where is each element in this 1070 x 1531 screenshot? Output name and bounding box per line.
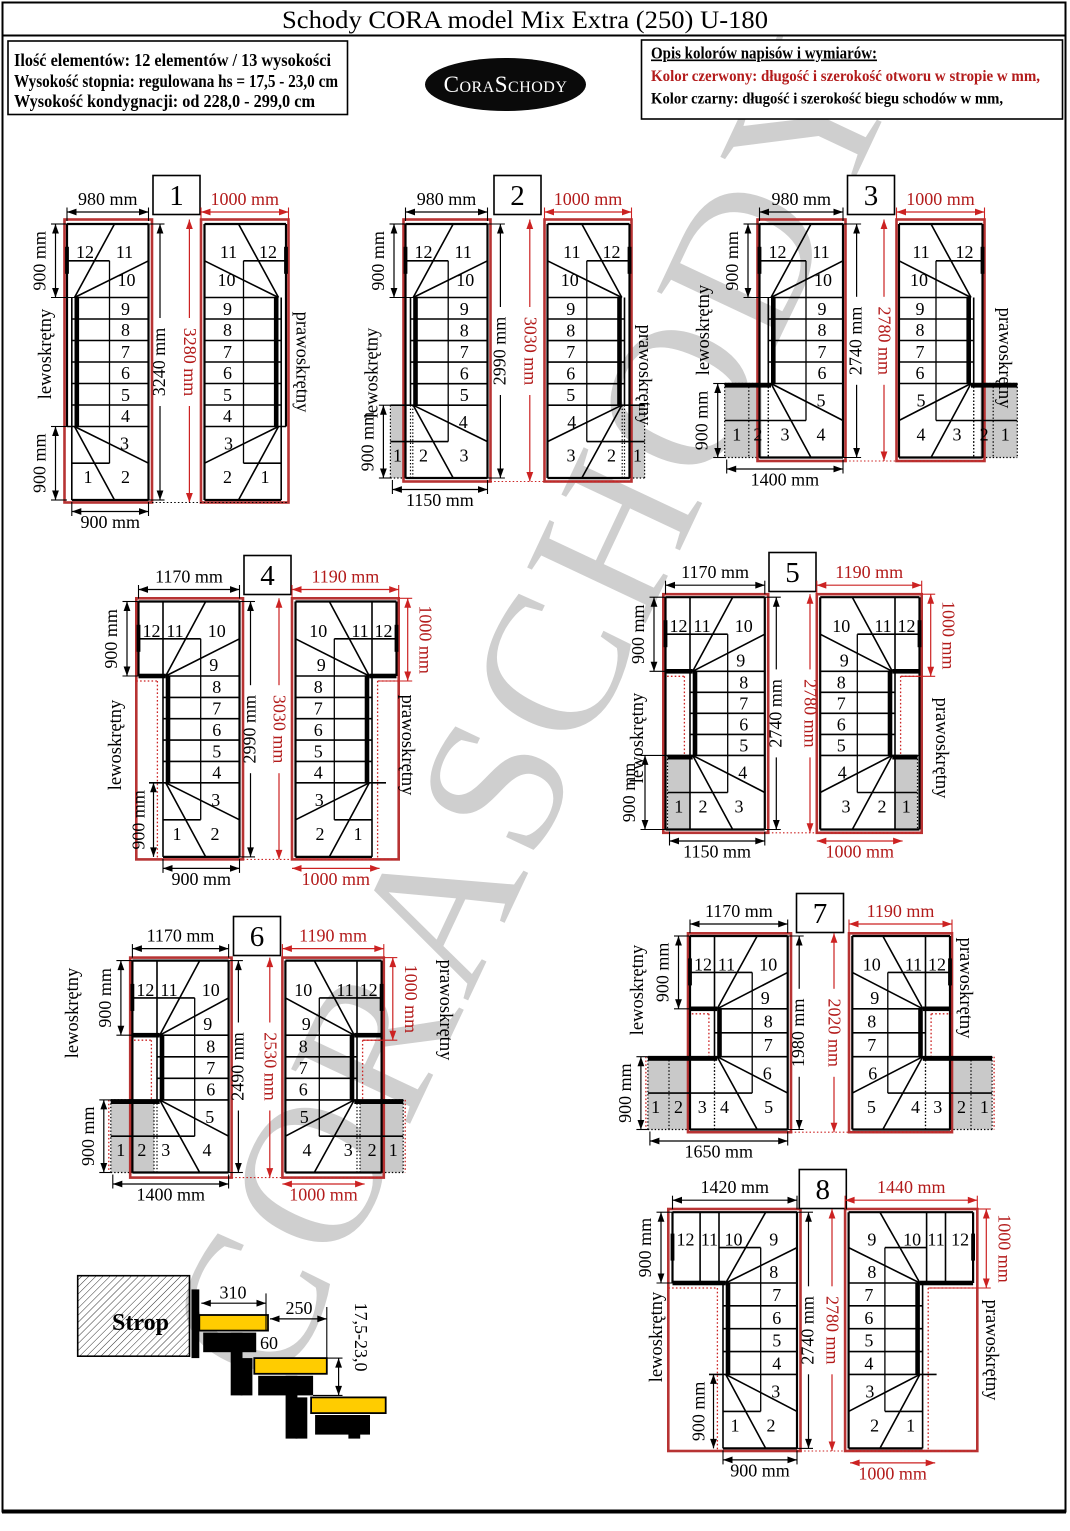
svg-text:3: 3 [865, 1381, 874, 1401]
svg-text:1650 mm: 1650 mm [685, 1142, 754, 1162]
svg-text:3030 mm: 3030 mm [270, 695, 290, 764]
svg-text:900 mm: 900 mm [722, 231, 742, 291]
svg-text:10: 10 [118, 270, 136, 290]
svg-text:6: 6 [837, 714, 846, 734]
svg-text:2530 mm: 2530 mm [260, 1032, 280, 1101]
svg-text:6: 6 [223, 363, 232, 383]
svg-text:4: 4 [459, 412, 468, 432]
svg-text:Kolor czarny: długość i szero: Kolor czarny: długość i szerokość biegu … [651, 91, 1003, 108]
svg-text:3: 3 [933, 1097, 942, 1117]
svg-text:5: 5 [205, 1107, 214, 1127]
svg-text:1420 mm: 1420 mm [701, 1177, 770, 1197]
svg-text:5: 5 [817, 391, 826, 411]
svg-text:11: 11 [160, 980, 177, 1000]
svg-text:10: 10 [814, 270, 832, 290]
svg-text:2: 2 [368, 1140, 377, 1160]
svg-text:1150 mm: 1150 mm [406, 490, 474, 510]
svg-text:11: 11 [905, 954, 922, 974]
svg-text:6: 6 [566, 363, 575, 383]
svg-text:9: 9 [121, 299, 130, 319]
svg-text:prawoskrętny: prawoskrętny [981, 1300, 1001, 1401]
svg-text:5: 5 [300, 1107, 309, 1127]
svg-text:10: 10 [735, 616, 753, 636]
svg-text:11: 11 [701, 1230, 718, 1250]
svg-text:3: 3 [211, 790, 220, 810]
svg-text:17,5-23,0: 17,5-23,0 [351, 1303, 371, 1372]
svg-text:12: 12 [136, 980, 154, 1000]
svg-text:4: 4 [303, 1140, 312, 1160]
svg-text:10: 10 [863, 954, 881, 974]
svg-text:3: 3 [735, 797, 744, 817]
svg-text:7: 7 [460, 342, 469, 362]
svg-text:9: 9 [317, 655, 326, 675]
svg-text:3: 3 [344, 1140, 353, 1160]
svg-text:lewoskrętny: lewoskrętny [363, 327, 383, 418]
svg-text:1: 1 [633, 446, 642, 466]
svg-text:4: 4 [121, 406, 130, 426]
svg-text:6: 6 [212, 720, 221, 740]
svg-text:2740 mm: 2740 mm [846, 307, 866, 376]
svg-text:11: 11 [912, 242, 929, 262]
svg-text:11: 11 [874, 616, 891, 636]
svg-text:3280 mm: 3280 mm [180, 328, 200, 397]
svg-text:7: 7 [121, 342, 130, 362]
svg-text:prawoskrętny: prawoskrętny [292, 312, 312, 413]
svg-text:8: 8 [566, 320, 575, 340]
svg-text:2: 2 [870, 1415, 879, 1435]
svg-text:10: 10 [561, 270, 579, 290]
svg-text:1: 1 [169, 180, 184, 212]
svg-text:900 mm: 900 mm [689, 1382, 709, 1442]
svg-text:6: 6 [818, 363, 827, 383]
svg-text:6: 6 [739, 714, 748, 734]
svg-text:8: 8 [223, 320, 232, 340]
svg-text:4: 4 [567, 412, 576, 432]
svg-text:900 mm: 900 mm [80, 512, 140, 532]
svg-text:Wysokość stopnia: regulowana: Wysokość stopnia: regulowana hs = 17,5 -… [14, 71, 338, 91]
svg-text:1: 1 [902, 797, 911, 817]
svg-text:1: 1 [1001, 425, 1010, 445]
svg-text:8: 8 [121, 320, 130, 340]
svg-text:3: 3 [161, 1140, 170, 1160]
svg-text:11: 11 [455, 242, 472, 262]
svg-text:1: 1 [732, 425, 741, 445]
svg-text:11: 11 [220, 242, 237, 262]
svg-text:prawoskrętny: prawoskrętny [435, 960, 455, 1061]
svg-text:4: 4 [314, 763, 323, 783]
svg-text:60: 60 [260, 1333, 278, 1353]
svg-text:900 mm: 900 mm [368, 231, 388, 291]
svg-text:7: 7 [299, 1058, 308, 1078]
svg-text:2: 2 [211, 824, 220, 844]
svg-text:12: 12 [360, 980, 378, 1000]
svg-text:900 mm: 900 mm [101, 609, 121, 669]
svg-text:1190 mm: 1190 mm [311, 567, 379, 587]
svg-text:9: 9 [916, 299, 925, 319]
svg-text:5: 5 [460, 385, 469, 405]
svg-text:3: 3 [864, 180, 879, 212]
svg-text:2: 2 [957, 1097, 966, 1117]
svg-text:1000 mm: 1000 mm [939, 601, 959, 670]
svg-text:4: 4 [911, 1097, 920, 1117]
svg-text:lewoskrętny: lewoskrętny [694, 284, 714, 375]
svg-text:3: 3 [771, 1381, 780, 1401]
svg-text:12: 12 [677, 1230, 695, 1250]
svg-text:1400 mm: 1400 mm [751, 470, 820, 490]
svg-text:900 mm: 900 mm [30, 231, 50, 291]
svg-text:1000 mm: 1000 mm [211, 189, 280, 209]
svg-text:6: 6 [864, 1308, 873, 1328]
svg-text:7: 7 [223, 342, 232, 362]
svg-text:9: 9 [736, 650, 745, 670]
svg-text:1: 1 [173, 824, 182, 844]
svg-text:lewoskrętny: lewoskrętny [106, 699, 126, 790]
svg-text:4: 4 [720, 1097, 729, 1117]
svg-text:4: 4 [772, 1354, 781, 1374]
svg-text:12: 12 [375, 621, 393, 641]
svg-text:10: 10 [309, 621, 327, 641]
svg-text:7: 7 [916, 342, 925, 362]
svg-text:1000 mm: 1000 mm [554, 189, 623, 209]
svg-text:1: 1 [674, 797, 683, 817]
svg-text:11: 11 [927, 1230, 944, 1250]
svg-text:2: 2 [878, 797, 887, 817]
svg-text:5: 5 [764, 1097, 773, 1117]
svg-text:1000 mm: 1000 mm [906, 189, 975, 209]
svg-text:900 mm: 900 mm [692, 391, 712, 451]
svg-text:2: 2 [767, 1415, 776, 1435]
svg-text:12: 12 [951, 1230, 969, 1250]
svg-text:3030 mm: 3030 mm [520, 317, 540, 386]
svg-text:8: 8 [818, 320, 827, 340]
svg-text:250: 250 [286, 1298, 313, 1318]
svg-text:9: 9 [769, 1230, 778, 1250]
svg-text:900 mm: 900 mm [653, 943, 673, 1003]
svg-text:6: 6 [460, 363, 469, 383]
svg-text:1170 mm: 1170 mm [155, 567, 223, 587]
svg-text:900 mm: 900 mm [171, 869, 231, 889]
svg-text:1: 1 [261, 467, 270, 487]
svg-text:6: 6 [121, 363, 130, 383]
svg-text:6: 6 [206, 1080, 215, 1100]
svg-text:8: 8 [867, 1011, 876, 1031]
svg-text:980 mm: 980 mm [417, 189, 477, 209]
svg-text:2490 mm: 2490 mm [227, 1032, 247, 1101]
svg-text:9: 9 [818, 299, 827, 319]
svg-text:7: 7 [212, 699, 221, 719]
svg-text:3: 3 [953, 425, 962, 445]
svg-text:980 mm: 980 mm [771, 189, 831, 209]
svg-text:7: 7 [314, 699, 323, 719]
svg-text:900 mm: 900 mm [357, 412, 377, 472]
svg-text:6: 6 [763, 1064, 772, 1084]
svg-text:1000 mm: 1000 mm [289, 1185, 358, 1205]
svg-text:8: 8 [314, 677, 323, 697]
svg-text:11: 11 [351, 621, 368, 641]
svg-text:900 mm: 900 mm [129, 790, 149, 850]
svg-text:3: 3 [842, 797, 851, 817]
svg-text:900 mm: 900 mm [635, 1218, 655, 1278]
svg-text:8: 8 [769, 1262, 778, 1282]
svg-text:1: 1 [354, 824, 363, 844]
svg-text:10: 10 [832, 616, 850, 636]
svg-text:12: 12 [769, 242, 787, 262]
svg-text:7: 7 [867, 1035, 876, 1055]
svg-text:8: 8 [867, 1262, 876, 1282]
svg-text:6: 6 [772, 1308, 781, 1328]
svg-text:7: 7 [206, 1058, 215, 1078]
svg-text:9: 9 [302, 1014, 311, 1034]
svg-text:3: 3 [567, 446, 576, 466]
svg-text:1150 mm: 1150 mm [683, 842, 751, 862]
svg-text:10: 10 [202, 980, 220, 1000]
svg-text:5: 5 [867, 1097, 876, 1117]
svg-text:8: 8 [212, 677, 221, 697]
svg-text:7: 7 [864, 1285, 873, 1305]
svg-text:2020 mm: 2020 mm [825, 999, 845, 1068]
svg-text:5: 5 [785, 557, 800, 589]
svg-text:6: 6 [250, 921, 265, 953]
svg-text:11: 11 [718, 954, 735, 974]
svg-text:1000 mm: 1000 mm [994, 1214, 1014, 1283]
svg-text:10: 10 [208, 621, 226, 641]
svg-text:prawoskrętny: prawoskrętny [397, 695, 417, 796]
svg-text:8: 8 [739, 672, 748, 692]
svg-text:6: 6 [299, 1080, 308, 1100]
svg-text:12: 12 [694, 954, 712, 974]
svg-text:6: 6 [916, 363, 925, 383]
svg-text:2740 mm: 2740 mm [765, 679, 785, 748]
svg-text:4: 4 [864, 1354, 873, 1374]
svg-text:7: 7 [818, 342, 827, 362]
svg-text:7: 7 [837, 693, 846, 713]
svg-text:2: 2 [223, 467, 232, 487]
svg-text:3: 3 [781, 425, 790, 445]
svg-text:prawoskrętny: prawoskrętny [634, 325, 654, 426]
svg-text:4: 4 [260, 560, 275, 592]
svg-text:900 mm: 900 mm [78, 1106, 98, 1166]
svg-text:10: 10 [759, 954, 777, 974]
svg-text:1000 mm: 1000 mm [401, 965, 421, 1034]
svg-text:2: 2 [980, 425, 989, 445]
svg-text:5: 5 [917, 391, 926, 411]
svg-text:12: 12 [259, 242, 277, 262]
svg-text:900 mm: 900 mm [615, 1063, 635, 1123]
svg-text:3: 3 [698, 1097, 707, 1117]
svg-text:1190 mm: 1190 mm [835, 562, 903, 582]
svg-text:900 mm: 900 mm [95, 968, 115, 1028]
svg-text:1: 1 [980, 1097, 989, 1117]
svg-text:3: 3 [460, 446, 469, 466]
svg-text:1190 mm: 1190 mm [867, 901, 935, 921]
svg-text:2: 2 [699, 797, 708, 817]
svg-text:12: 12 [603, 242, 621, 262]
svg-text:1170 mm: 1170 mm [147, 926, 215, 946]
svg-text:8: 8 [916, 320, 925, 340]
svg-text:5: 5 [864, 1331, 873, 1351]
svg-text:1170 mm: 1170 mm [681, 562, 749, 582]
svg-text:12: 12 [670, 616, 688, 636]
svg-text:1: 1 [731, 1415, 740, 1435]
svg-text:900 mm: 900 mm [628, 604, 648, 664]
svg-text:12: 12 [76, 242, 94, 262]
svg-text:10: 10 [294, 980, 312, 1000]
svg-text:5: 5 [566, 385, 575, 405]
svg-text:Ilość elementów: 12 elementów: Ilość elementów: 12 elementów / 13 wysok… [14, 50, 331, 70]
svg-text:1: 1 [393, 446, 402, 466]
svg-text:1: 1 [389, 1140, 398, 1160]
svg-text:900 mm: 900 mm [730, 1460, 790, 1480]
svg-text:lewoskrętny: lewoskrętny [647, 1291, 667, 1382]
svg-text:310: 310 [220, 1283, 247, 1303]
svg-text:12: 12 [956, 242, 974, 262]
svg-text:lewoskrętny: lewoskrętny [628, 692, 648, 783]
svg-text:2780 mm: 2780 mm [823, 1296, 843, 1365]
svg-text:5: 5 [837, 735, 846, 755]
svg-text:7: 7 [739, 693, 748, 713]
svg-text:2990 mm: 2990 mm [489, 317, 509, 386]
svg-text:12: 12 [898, 616, 916, 636]
svg-text:7: 7 [813, 898, 828, 930]
svg-text:1: 1 [116, 1140, 125, 1160]
svg-text:12: 12 [143, 621, 161, 641]
svg-text:1000 mm: 1000 mm [858, 1463, 927, 1483]
svg-text:prawoskrętny: prawoskrętny [931, 698, 951, 799]
svg-text:4: 4 [223, 406, 232, 426]
svg-text:1400 mm: 1400 mm [136, 1185, 205, 1205]
svg-text:11: 11 [116, 242, 133, 262]
svg-text:5: 5 [223, 385, 232, 405]
svg-text:3: 3 [224, 434, 233, 454]
svg-text:12: 12 [415, 242, 433, 262]
svg-text:4: 4 [738, 762, 747, 782]
svg-text:10: 10 [218, 270, 236, 290]
svg-text:11: 11 [812, 242, 829, 262]
svg-text:Kolor czerwony: długość i sze: Kolor czerwony: długość i szerokość otwo… [651, 68, 1040, 85]
svg-text:10: 10 [910, 270, 928, 290]
svg-text:lewoskrętny: lewoskrętny [63, 967, 83, 1058]
svg-text:9: 9 [867, 1230, 876, 1250]
svg-text:1190 mm: 1190 mm [299, 926, 367, 946]
svg-text:4: 4 [838, 762, 847, 782]
svg-text:4: 4 [212, 763, 221, 783]
svg-text:1000 mm: 1000 mm [825, 842, 894, 862]
svg-text:10: 10 [903, 1230, 921, 1250]
svg-text:8: 8 [764, 1011, 773, 1031]
svg-text:11: 11 [563, 242, 580, 262]
svg-text:1: 1 [651, 1097, 660, 1117]
svg-text:2: 2 [121, 467, 130, 487]
svg-text:11: 11 [336, 980, 353, 1000]
svg-text:9: 9 [203, 1014, 212, 1034]
svg-text:9: 9 [840, 650, 849, 670]
svg-text:4: 4 [817, 425, 826, 445]
svg-text:11: 11 [166, 621, 183, 641]
svg-text:5: 5 [772, 1331, 781, 1351]
svg-text:lewoskrętny: lewoskrętny [628, 944, 648, 1035]
svg-text:5: 5 [212, 741, 221, 761]
svg-text:6: 6 [868, 1064, 877, 1084]
svg-text:9: 9 [223, 299, 232, 319]
svg-text:7: 7 [566, 342, 575, 362]
svg-text:5: 5 [739, 735, 748, 755]
svg-text:8: 8 [816, 1174, 831, 1206]
svg-text:8: 8 [299, 1037, 308, 1057]
svg-text:3: 3 [315, 790, 324, 810]
svg-text:9: 9 [209, 655, 218, 675]
svg-text:lewoskrętny: lewoskrętny [36, 308, 56, 399]
svg-text:7: 7 [764, 1035, 773, 1055]
svg-text:2780 mm: 2780 mm [801, 679, 821, 748]
svg-text:3: 3 [120, 434, 129, 454]
svg-text:Strop: Strop [112, 1310, 169, 1336]
svg-text:8: 8 [837, 672, 846, 692]
svg-text:2: 2 [137, 1140, 146, 1160]
svg-text:1000 mm: 1000 mm [302, 869, 371, 889]
svg-text:4: 4 [203, 1140, 212, 1160]
svg-text:prawoskrętny: prawoskrętny [955, 938, 975, 1039]
svg-text:8: 8 [206, 1037, 215, 1057]
svg-text:2: 2 [510, 180, 525, 212]
svg-text:10: 10 [456, 270, 474, 290]
svg-text:Wysokość kondygnacji: od 228,0: Wysokość kondygnacji: od 228,0 - 299,0 c… [14, 91, 315, 111]
svg-text:2: 2 [316, 824, 325, 844]
svg-text:12: 12 [928, 954, 946, 974]
svg-text:2780 mm: 2780 mm [875, 307, 895, 376]
svg-text:2740 mm: 2740 mm [798, 1296, 818, 1365]
svg-text:prawoskrętny: prawoskrętny [994, 308, 1014, 409]
svg-text:8: 8 [460, 320, 469, 340]
svg-text:1440 mm: 1440 mm [877, 1177, 946, 1197]
svg-text:6: 6 [314, 720, 323, 740]
svg-text:5: 5 [314, 741, 323, 761]
svg-text:9: 9 [566, 299, 575, 319]
svg-text:980 mm: 980 mm [78, 189, 138, 209]
svg-text:2990 mm: 2990 mm [240, 695, 260, 764]
svg-text:1980 mm: 1980 mm [788, 999, 808, 1068]
svg-text:7: 7 [772, 1285, 781, 1305]
svg-text:2: 2 [419, 446, 428, 466]
svg-text:9: 9 [460, 299, 469, 319]
svg-text:2: 2 [674, 1097, 683, 1117]
svg-text:3240 mm: 3240 mm [149, 328, 169, 397]
svg-text:1000 mm: 1000 mm [416, 605, 436, 674]
svg-text:Opis kolorów napisów i wymiaró: Opis kolorów napisów i wymiarów: [651, 44, 877, 63]
svg-text:900 mm: 900 mm [30, 433, 50, 493]
svg-text:4: 4 [917, 425, 926, 445]
svg-text:1: 1 [84, 467, 93, 487]
svg-text:Schody CORA model Mix Extra (2: Schody CORA model Mix Extra (250) U-180 [282, 7, 768, 34]
svg-text:11: 11 [693, 616, 710, 636]
svg-text:9: 9 [761, 988, 770, 1008]
svg-text:5: 5 [121, 385, 130, 405]
svg-text:1: 1 [906, 1415, 915, 1435]
svg-text:9: 9 [870, 988, 879, 1008]
svg-text:1170 mm: 1170 mm [705, 901, 773, 921]
svg-text:10: 10 [725, 1230, 743, 1250]
svg-text:2: 2 [753, 425, 762, 445]
svg-text:2: 2 [607, 446, 616, 466]
